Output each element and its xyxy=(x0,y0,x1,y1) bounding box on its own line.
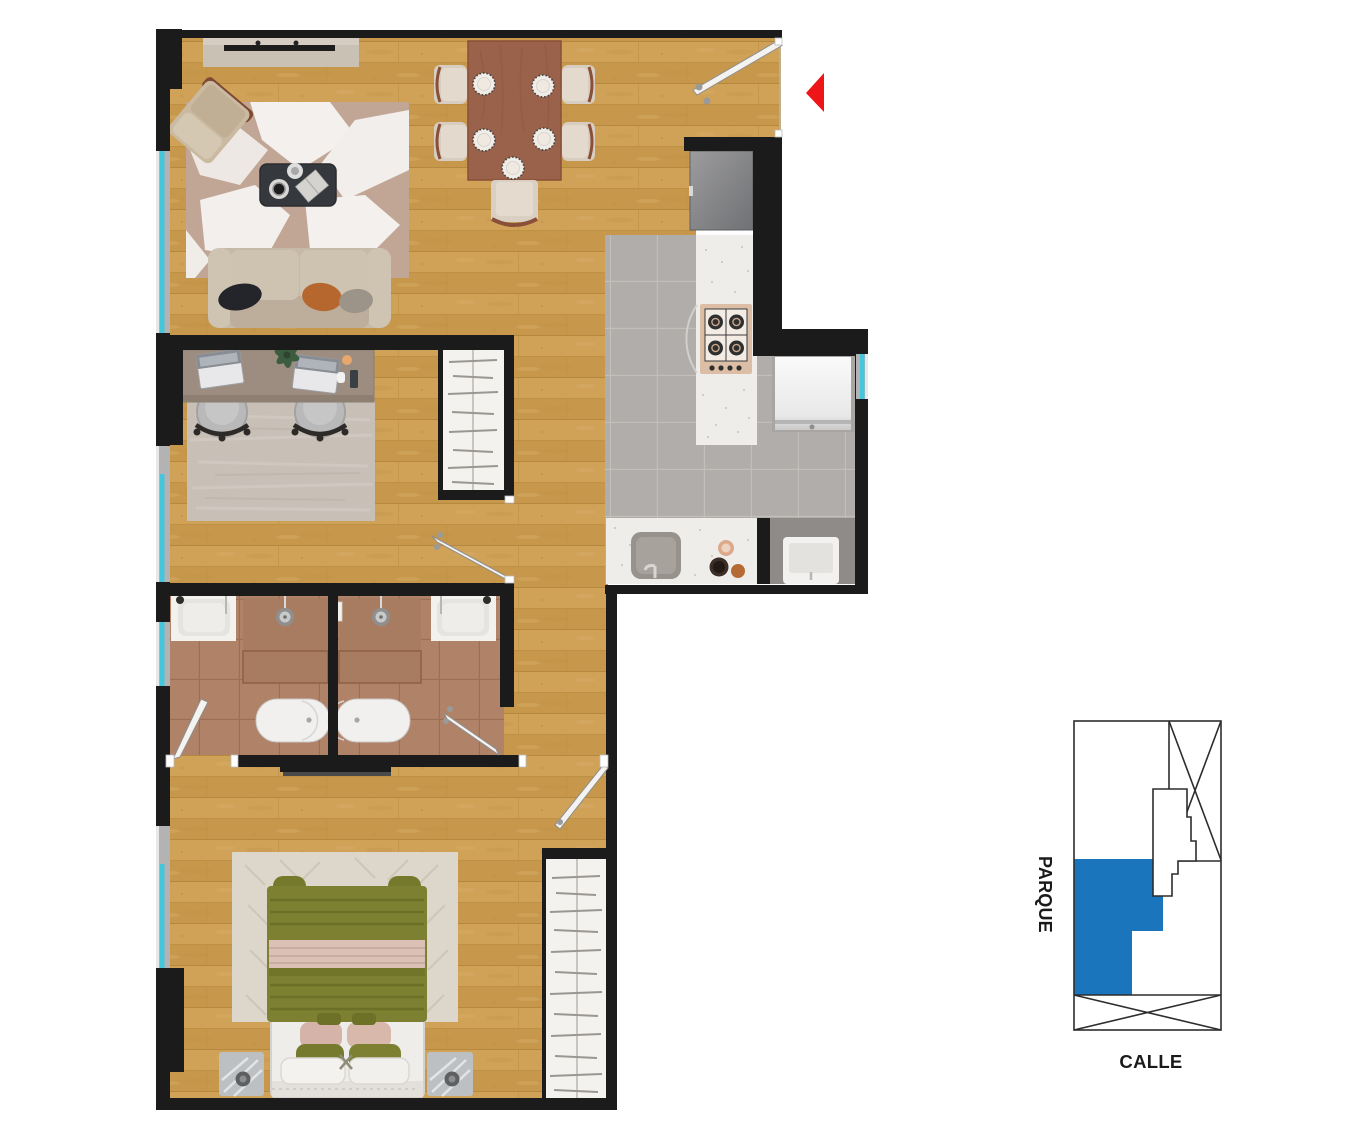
svg-text:CALLE: CALLE xyxy=(1119,1051,1182,1072)
svg-text:PARQUE: PARQUE xyxy=(1035,856,1055,933)
